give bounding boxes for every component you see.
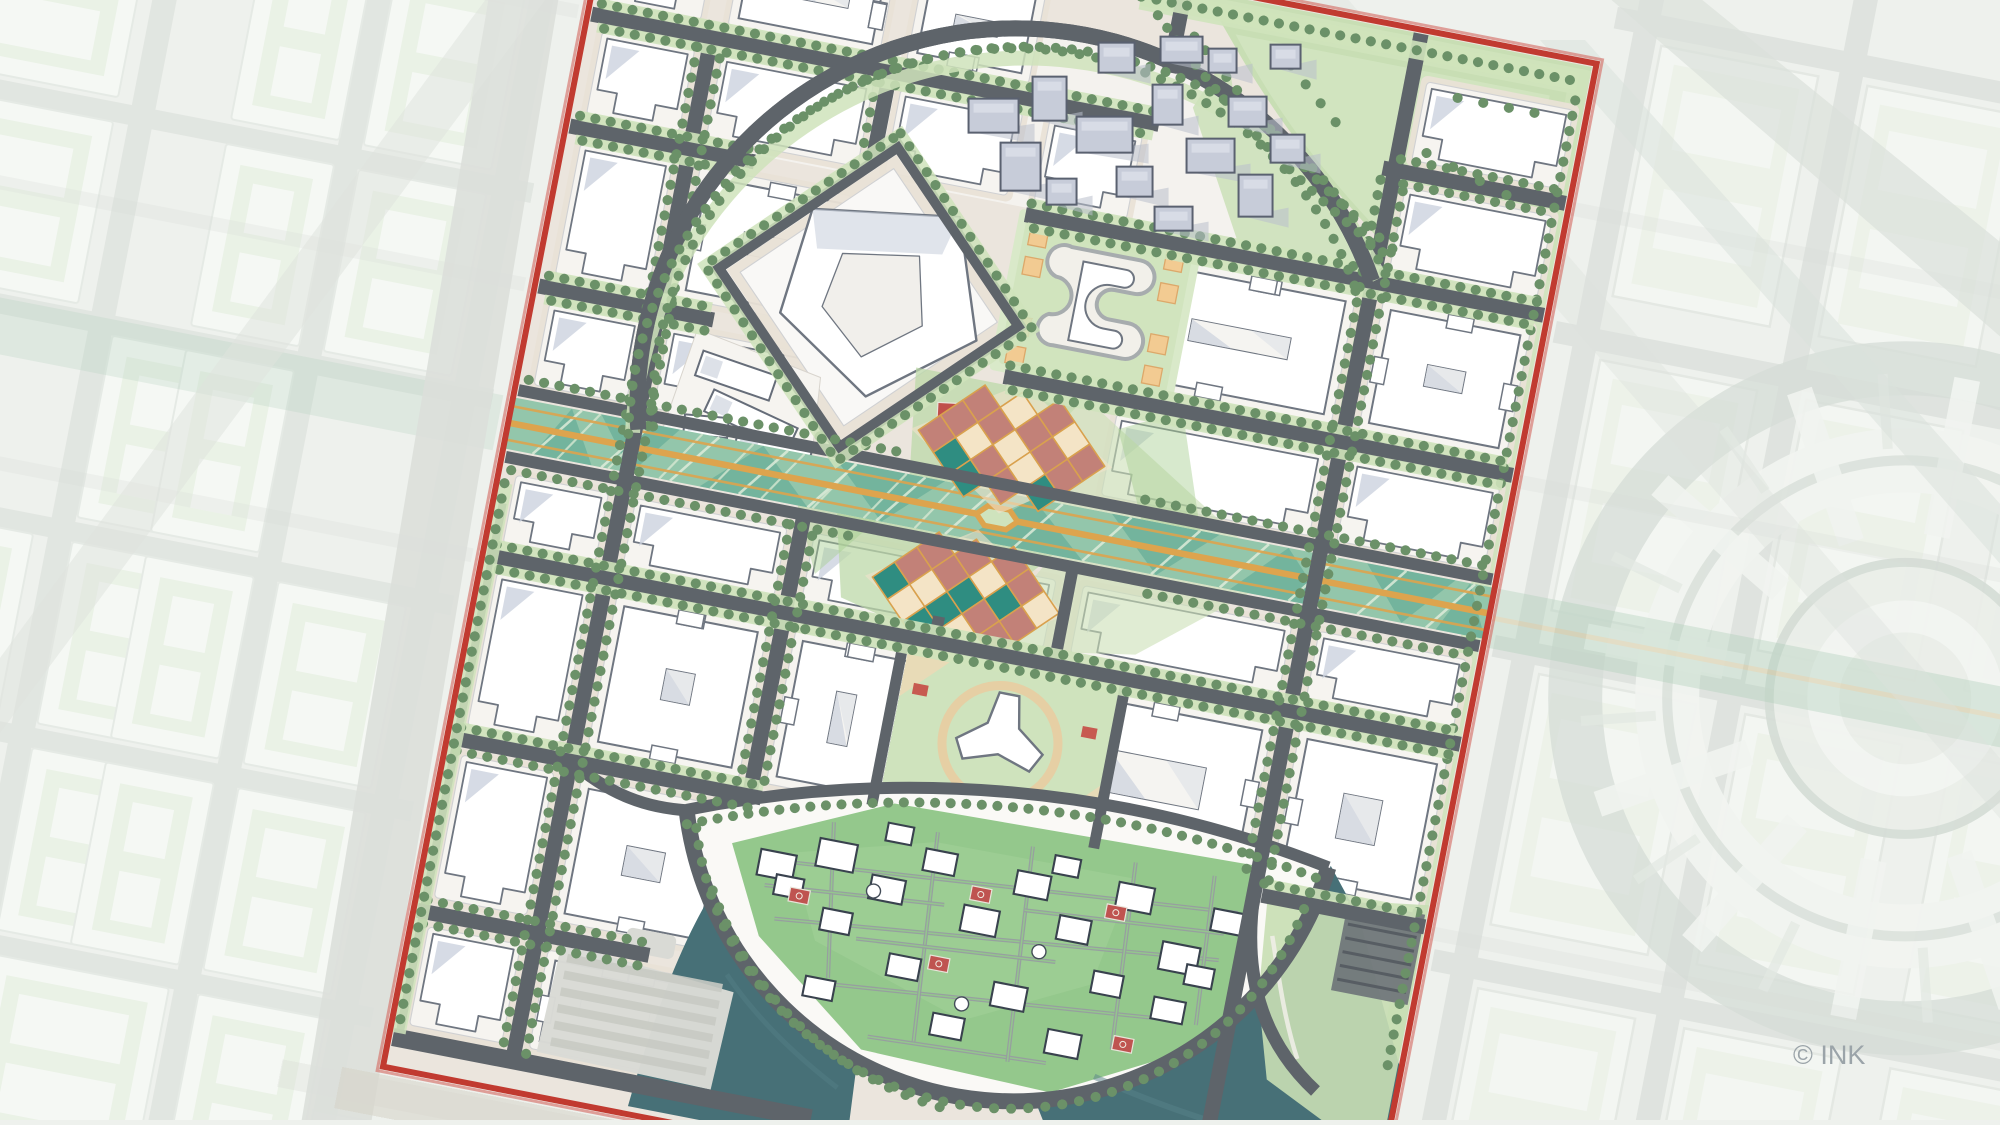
svg-text:© INK: © INK	[1793, 1040, 1865, 1070]
